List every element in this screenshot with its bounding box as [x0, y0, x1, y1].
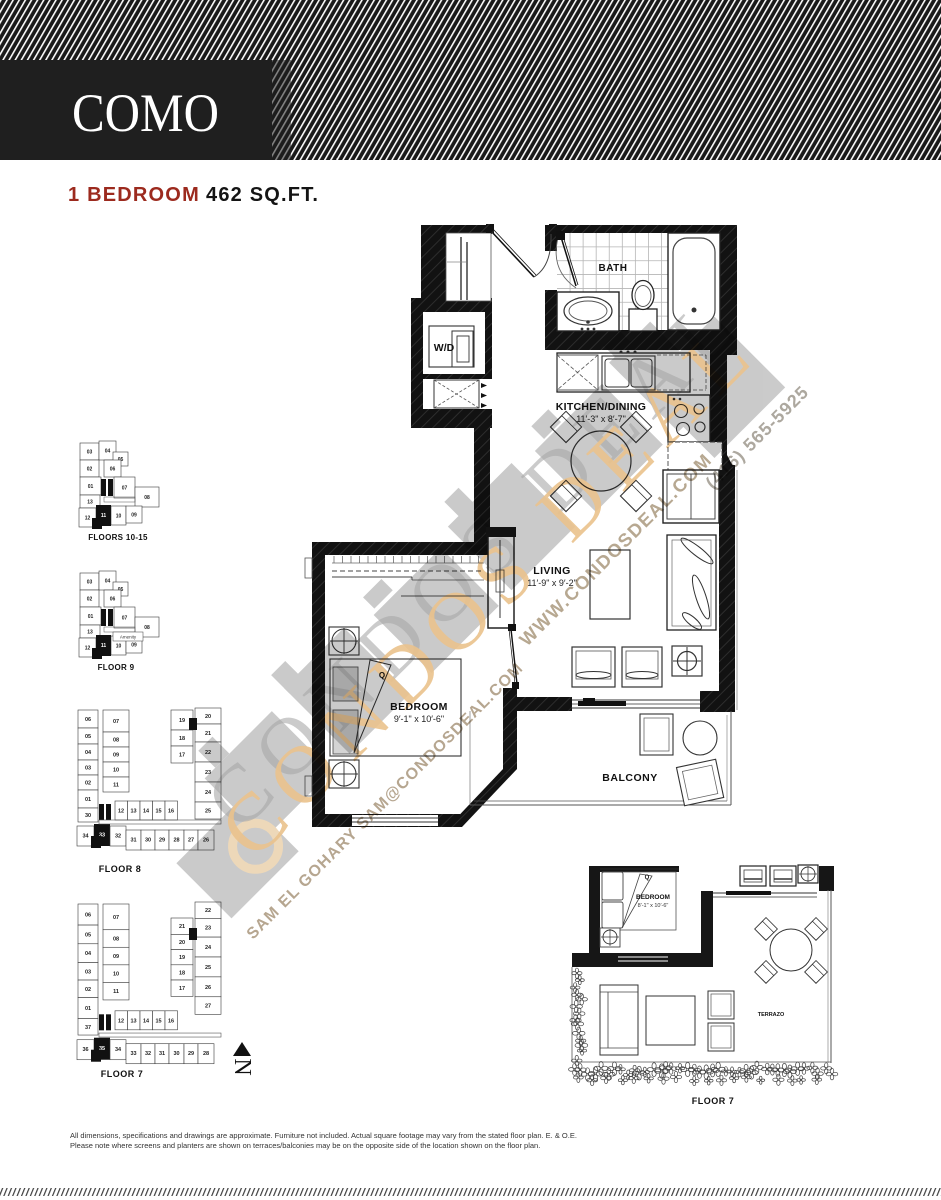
svg-text:12: 12: [85, 646, 91, 652]
svg-text:Q: Q: [645, 875, 650, 881]
svg-text:29: 29: [159, 838, 165, 844]
svg-text:32: 32: [145, 1051, 151, 1057]
svg-text:06: 06: [110, 597, 116, 603]
svg-text:TERRAZO: TERRAZO: [758, 1012, 785, 1018]
svg-text:All dimensions, specifications: All dimensions, specifications and drawi…: [70, 1131, 577, 1140]
svg-text:18: 18: [179, 970, 185, 976]
svg-text:20: 20: [179, 940, 185, 946]
svg-text:10: 10: [116, 514, 122, 520]
svg-text:03: 03: [85, 969, 91, 975]
svg-text:01: 01: [85, 1006, 91, 1012]
svg-text:04: 04: [85, 750, 92, 756]
svg-text:13: 13: [87, 630, 93, 636]
svg-text:04: 04: [105, 579, 111, 585]
svg-text:08: 08: [144, 495, 150, 501]
svg-text:FLOOR 7: FLOOR 7: [101, 1069, 144, 1079]
svg-text:34: 34: [115, 1047, 122, 1053]
svg-text:8′-1" x 10′-6": 8′-1" x 10′-6": [638, 903, 669, 909]
svg-text:07: 07: [113, 915, 119, 921]
svg-text:13: 13: [87, 500, 93, 506]
svg-text:FLOOR 8: FLOOR 8: [99, 864, 142, 874]
svg-text:Please note where screens and: Please note where screens and planters a…: [70, 1141, 540, 1150]
svg-text:16: 16: [168, 1018, 174, 1024]
svg-text:22: 22: [205, 908, 211, 914]
svg-text:FLOOR 9: FLOOR 9: [98, 663, 135, 672]
svg-text:02: 02: [87, 597, 93, 603]
svg-text:27: 27: [205, 1004, 211, 1010]
svg-text:19: 19: [179, 955, 185, 961]
svg-text:21: 21: [179, 924, 185, 930]
svg-text:31: 31: [159, 1051, 165, 1057]
svg-text:08: 08: [113, 937, 119, 943]
svg-text:13: 13: [130, 1018, 136, 1024]
svg-text:32: 32: [115, 834, 121, 840]
svg-text:03: 03: [85, 766, 91, 772]
svg-text:28: 28: [173, 838, 179, 844]
svg-text:W/D: W/D: [434, 342, 455, 354]
svg-text:30: 30: [85, 813, 91, 819]
svg-text:1 BEDROOM: 1 BEDROOM: [68, 184, 200, 206]
svg-text:31: 31: [130, 838, 136, 844]
svg-text:02: 02: [85, 987, 91, 993]
svg-text:12: 12: [118, 809, 124, 815]
svg-text:06: 06: [110, 467, 116, 473]
svg-text:FLOOR 7: FLOOR 7: [692, 1096, 735, 1106]
svg-text:10: 10: [113, 768, 119, 774]
svg-text:FLOORS 10-15: FLOORS 10-15: [88, 533, 148, 542]
svg-text:02: 02: [87, 467, 93, 473]
svg-text:29: 29: [188, 1051, 194, 1057]
svg-text:03: 03: [87, 580, 93, 586]
svg-text:01: 01: [88, 484, 94, 490]
svg-text:15: 15: [155, 809, 161, 815]
svg-text:01: 01: [88, 614, 94, 620]
svg-text:24: 24: [205, 945, 212, 951]
svg-text:02: 02: [85, 781, 91, 787]
svg-text:27: 27: [188, 838, 194, 844]
svg-text:36: 36: [82, 1047, 88, 1053]
svg-text:13: 13: [130, 809, 136, 815]
svg-text:10: 10: [113, 972, 119, 978]
svg-text:BATH: BATH: [598, 263, 627, 274]
svg-text:03: 03: [87, 450, 93, 456]
svg-text:17: 17: [179, 986, 185, 992]
svg-text:26: 26: [205, 985, 211, 991]
svg-text:23: 23: [205, 926, 211, 932]
svg-text:06: 06: [85, 913, 91, 919]
svg-text:30: 30: [145, 838, 151, 844]
svg-text:BEDROOM: BEDROOM: [636, 894, 670, 901]
svg-text:05: 05: [85, 932, 91, 938]
svg-text:N: N: [229, 1058, 255, 1075]
svg-text:07: 07: [122, 616, 128, 622]
svg-text:17: 17: [179, 753, 185, 759]
svg-text:34: 34: [82, 834, 89, 840]
svg-text:09: 09: [113, 954, 119, 960]
svg-text:09: 09: [131, 513, 137, 519]
svg-text:08: 08: [113, 738, 119, 744]
svg-text:04: 04: [85, 951, 92, 957]
svg-text:COMO: COMO: [72, 83, 219, 143]
svg-text:BALCONY: BALCONY: [602, 772, 657, 784]
svg-text:33: 33: [130, 1051, 136, 1057]
svg-text:12: 12: [85, 516, 91, 522]
svg-text:16: 16: [168, 809, 174, 815]
svg-text:19: 19: [179, 718, 185, 724]
svg-text:18: 18: [179, 736, 185, 742]
svg-text:37: 37: [85, 1025, 91, 1031]
svg-text:09: 09: [131, 643, 137, 649]
svg-text:07: 07: [122, 486, 128, 492]
svg-text:20: 20: [205, 714, 211, 720]
svg-text:Amenity: Amenity: [120, 635, 137, 640]
svg-text:04: 04: [105, 449, 111, 455]
svg-text:15: 15: [155, 1018, 161, 1024]
svg-text:10: 10: [116, 644, 122, 650]
svg-text:11: 11: [113, 989, 119, 995]
svg-text:30: 30: [173, 1051, 179, 1057]
svg-text:09: 09: [113, 753, 119, 759]
svg-text:11: 11: [113, 783, 119, 789]
svg-text:462 SQ.FT.: 462 SQ.FT.: [206, 184, 319, 206]
svg-text:08: 08: [144, 625, 150, 631]
svg-text:14: 14: [143, 1018, 150, 1024]
svg-text:14: 14: [143, 809, 150, 815]
svg-text:25: 25: [205, 965, 211, 971]
svg-text:01: 01: [85, 797, 91, 803]
svg-text:12: 12: [118, 1018, 124, 1024]
svg-text:21: 21: [205, 731, 211, 737]
svg-text:05: 05: [85, 734, 91, 740]
svg-text:06: 06: [85, 717, 91, 723]
svg-text:28: 28: [203, 1051, 209, 1057]
svg-text:07: 07: [113, 719, 119, 725]
